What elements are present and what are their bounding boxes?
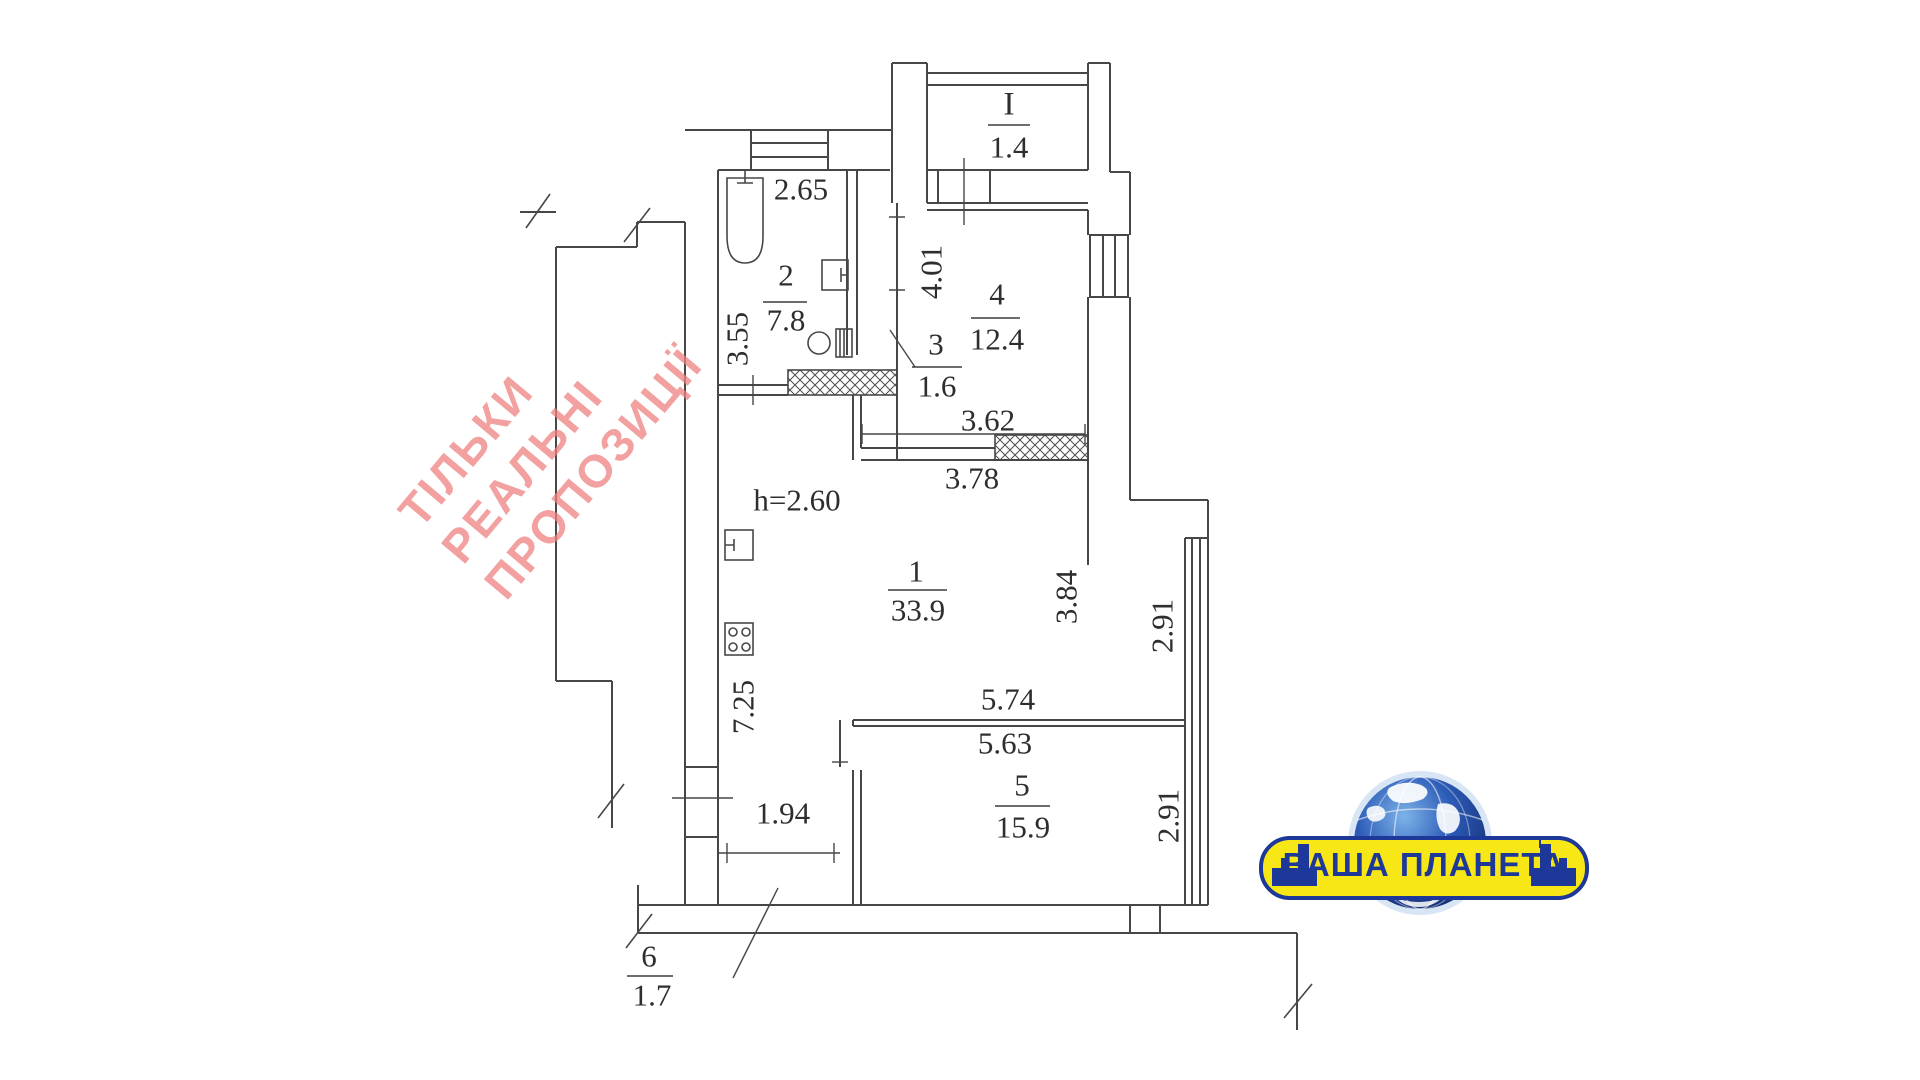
room-2-area: 7.8 bbox=[767, 305, 806, 336]
dim-7-25: 7.25 bbox=[728, 680, 759, 734]
dim-5-63: 5.63 bbox=[978, 728, 1032, 759]
fixtures bbox=[725, 170, 852, 655]
agency-logo: ВАША ПЛАНЕТА bbox=[1256, 770, 1592, 922]
room-6-area: 1.7 bbox=[633, 980, 672, 1011]
room-1-number: 1 bbox=[908, 556, 924, 587]
dim-2-91-lower: 2.91 bbox=[1153, 789, 1184, 843]
toilet-icon bbox=[808, 332, 830, 354]
floor-plan-drawing bbox=[0, 0, 1920, 1080]
room-4-area: 12.4 bbox=[970, 324, 1024, 355]
dim-5-74: 5.74 bbox=[981, 684, 1035, 715]
bathtub-icon bbox=[727, 178, 763, 263]
dimension-lines bbox=[672, 158, 1085, 978]
floor-plan-page: I 1.4 2.65 3.55 4.01 2 7.8 4 12.4 3 1.6 … bbox=[0, 0, 1920, 1080]
room-5-area: 15.9 bbox=[996, 812, 1050, 843]
dim-3-84: 3.84 bbox=[1051, 570, 1082, 624]
room-3-number: 3 bbox=[928, 329, 944, 360]
ceiling-height-label: h=2.60 bbox=[753, 485, 840, 516]
room-balcony-area: 1.4 bbox=[990, 132, 1029, 163]
room-1-area: 33.9 bbox=[891, 595, 945, 626]
dim-2-91-upper: 2.91 bbox=[1147, 599, 1178, 653]
room-2-number: 2 bbox=[778, 260, 794, 291]
fraction-bars bbox=[627, 125, 1050, 976]
room-4-number: 4 bbox=[989, 279, 1005, 310]
walls bbox=[520, 63, 1297, 1030]
dim-3-62: 3.62 bbox=[961, 405, 1015, 436]
dim-4-01: 4.01 bbox=[916, 245, 947, 299]
room-6-number: 6 bbox=[641, 941, 657, 972]
room-5-number: 5 bbox=[1014, 770, 1030, 801]
dim-2-65: 2.65 bbox=[774, 174, 828, 205]
agency-logo-text: ВАША ПЛАНЕТА bbox=[1262, 846, 1586, 884]
dim-3-78: 3.78 bbox=[945, 463, 999, 494]
room-balcony-number: I bbox=[1004, 89, 1015, 122]
room-3-area: 1.6 bbox=[918, 371, 957, 402]
dim-1-94: 1.94 bbox=[756, 798, 810, 829]
